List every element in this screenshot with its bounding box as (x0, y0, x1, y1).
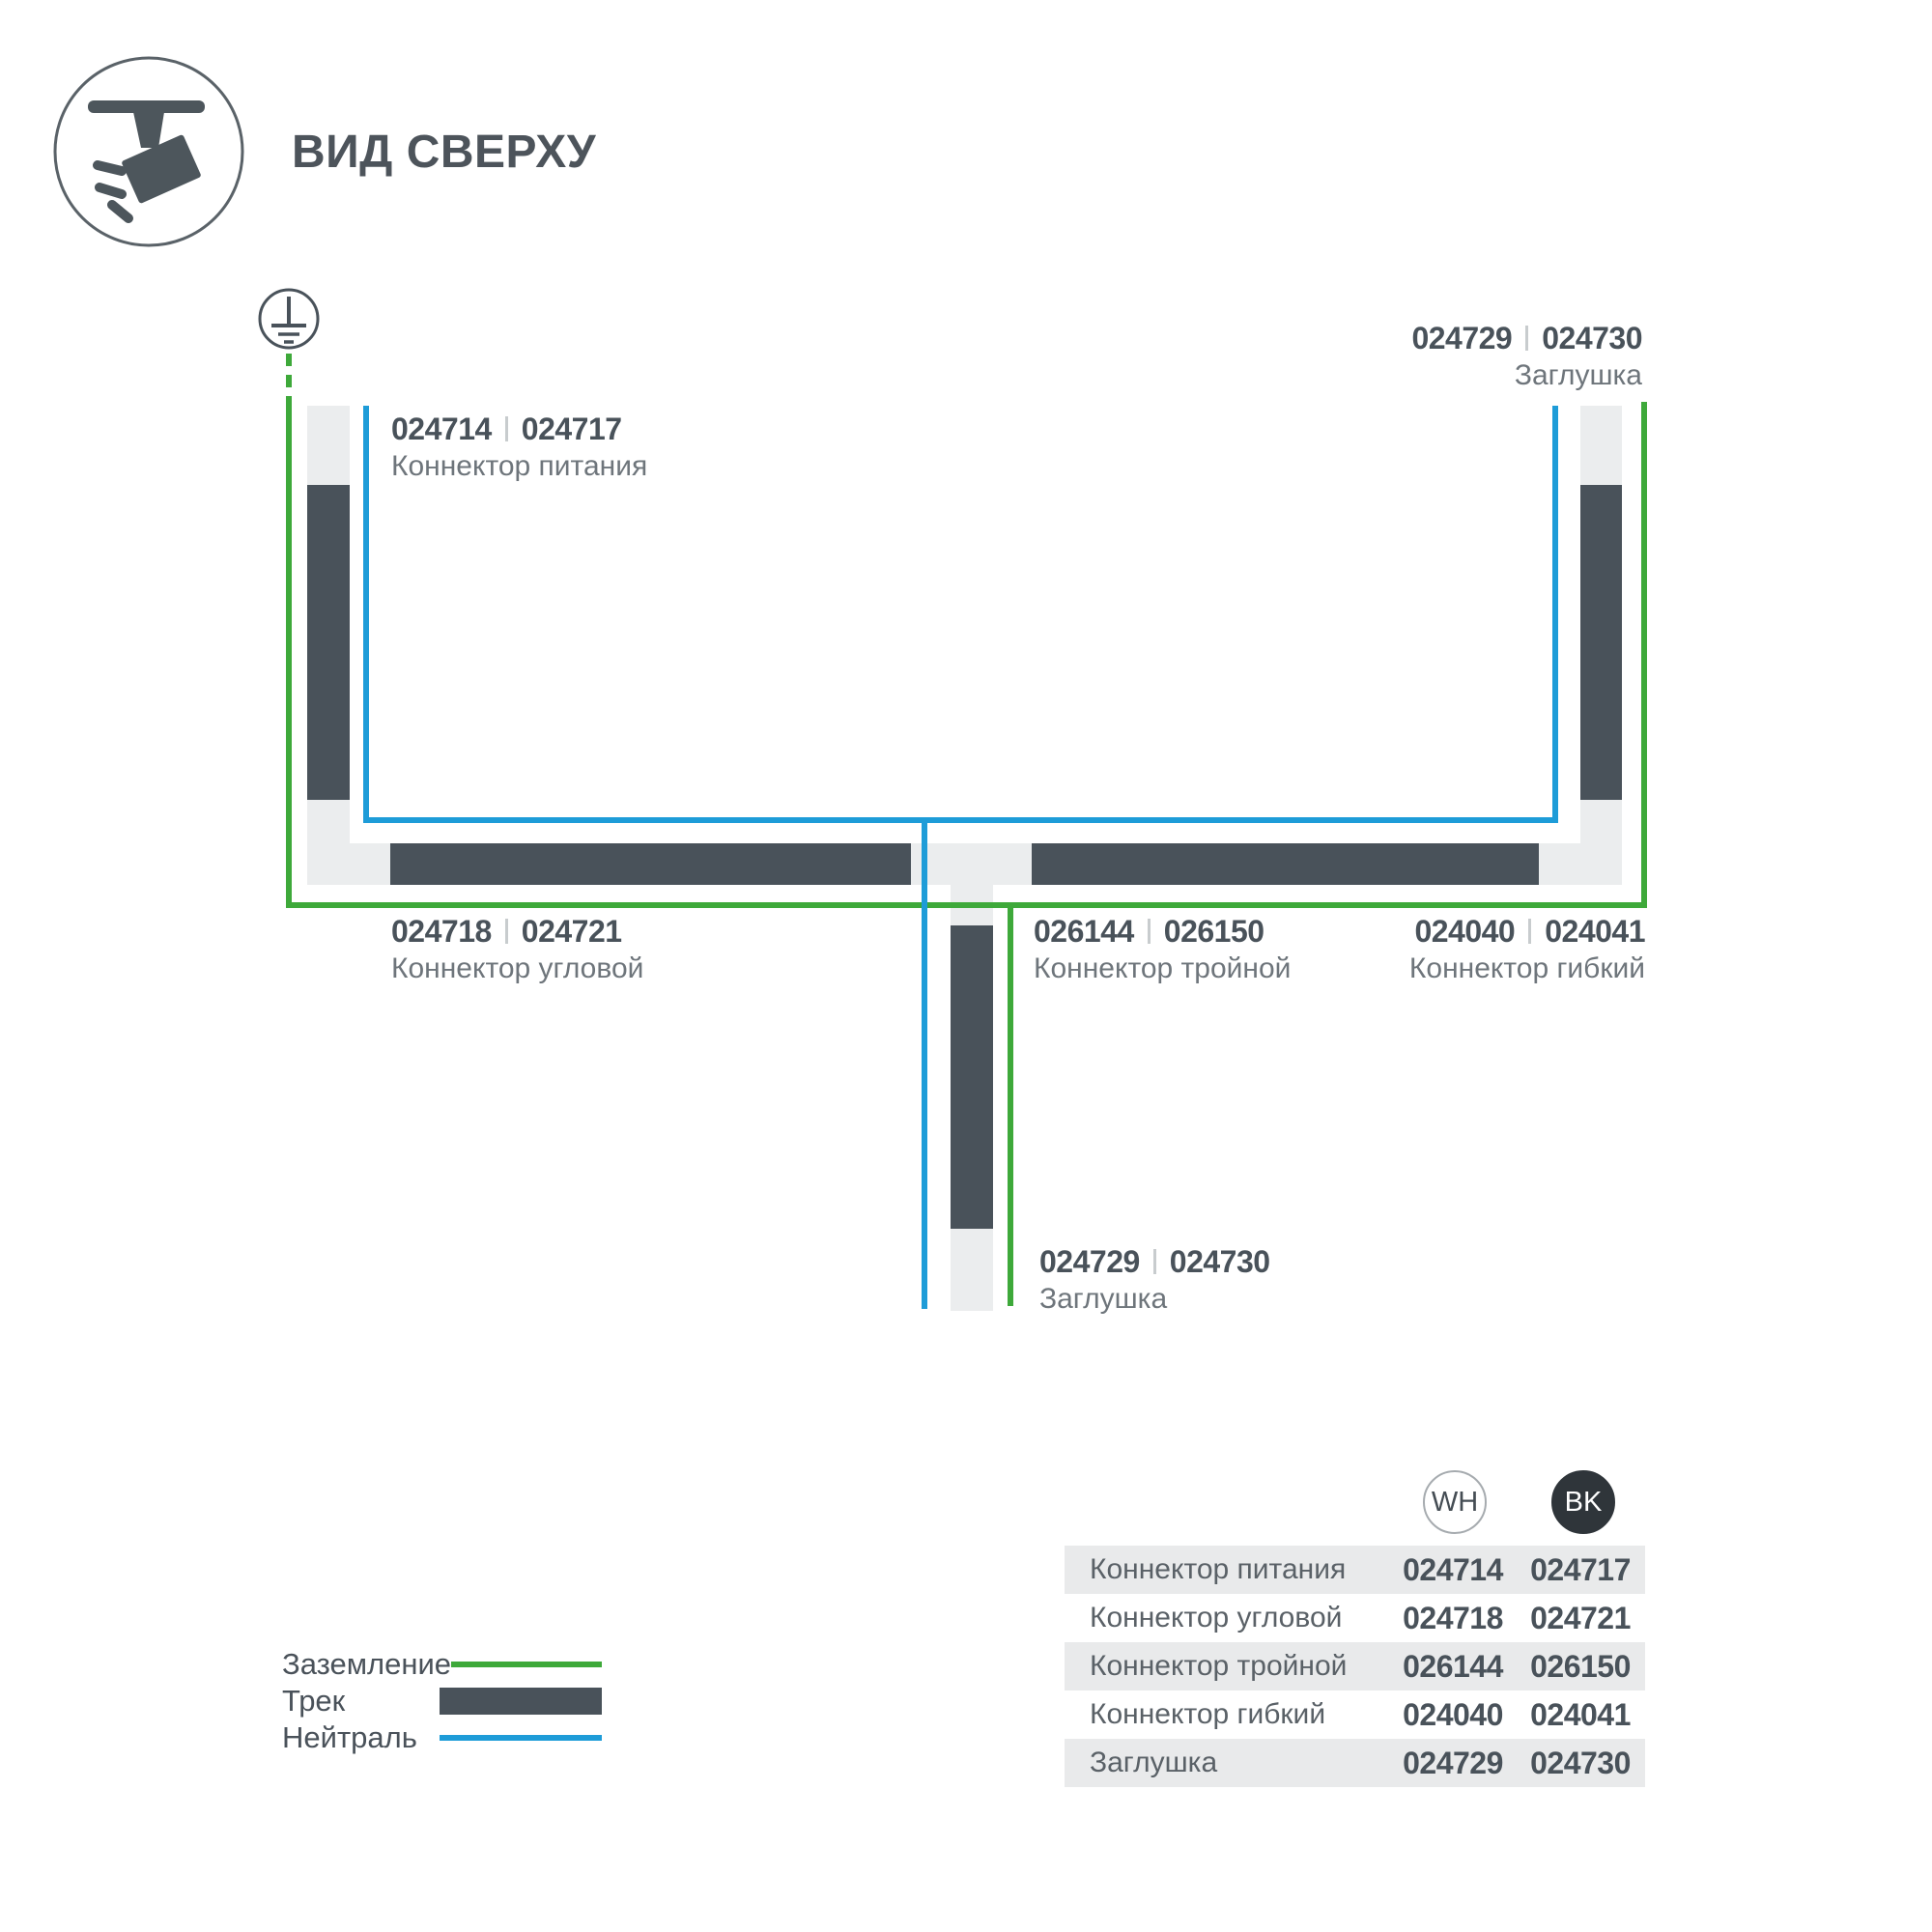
legend: Заземление Трек Нейтраль (282, 1646, 602, 1756)
separator (1525, 326, 1528, 351)
label-corner-connector: 024718024721 Коннектор угловой (391, 912, 643, 987)
code-wh: 024729 (1039, 1244, 1140, 1279)
neutral-line-swatch (440, 1735, 602, 1741)
part-name: Коннектор угловой (391, 951, 643, 987)
row-code-bk: 024721 (1517, 1601, 1644, 1636)
endcap-top-piece (1580, 406, 1622, 485)
code-bk: 024730 (1542, 321, 1642, 355)
label-triple-connector: 026144026150 Коннектор тройной (1034, 912, 1291, 987)
code-wh: 026144 (1034, 914, 1134, 949)
code-wh: 024729 (1411, 321, 1512, 355)
legend-label: Нейтраль (282, 1720, 417, 1755)
label-flex-connector: 024040024041 Коннектор гибкий (1409, 912, 1645, 987)
parts-table: WH BK Коннектор питания 024714 024717 Ко… (1065, 1546, 1645, 1787)
table-row: Коннектор угловой 024718 024721 (1065, 1594, 1645, 1642)
separator (505, 416, 508, 441)
part-name: Коннектор питания (391, 448, 647, 485)
row-code-bk: 026150 (1517, 1649, 1644, 1685)
track-segment-left (307, 485, 350, 800)
code-bk: 024730 (1170, 1244, 1270, 1279)
table-row: Коннектор гибкий 024040 024041 (1065, 1690, 1645, 1739)
row-code-wh: 024040 (1389, 1697, 1517, 1733)
label-endcap-bottom: 024729024730 Заглушка (1039, 1242, 1270, 1318)
track-bar-swatch (440, 1688, 602, 1715)
endcap-bottom-piece (951, 1229, 993, 1311)
column-header-bk: BK (1551, 1470, 1615, 1534)
row-label: Коннектор тройной (1065, 1650, 1389, 1683)
legend-item-neutral: Нейтраль (282, 1719, 602, 1756)
separator (505, 919, 508, 944)
row-code-wh: 026144 (1389, 1649, 1517, 1685)
power-connector-piece (307, 406, 350, 485)
code-wh: 024040 (1414, 914, 1515, 949)
column-header-wh: WH (1423, 1470, 1487, 1534)
legend-label: Заземление (282, 1647, 451, 1682)
separator (1153, 1249, 1156, 1274)
legend-item-track: Трек (282, 1683, 602, 1719)
part-name: Коннектор гибкий (1409, 951, 1645, 987)
triple-connector-piece (911, 843, 1032, 925)
part-name: Заглушка (1039, 1281, 1270, 1318)
flex-connector-piece (1539, 800, 1622, 885)
part-name: Заглушка (1411, 357, 1642, 394)
code-bk: 026150 (1164, 914, 1264, 949)
code-wh: 024718 (391, 914, 492, 949)
row-code-bk: 024730 (1517, 1746, 1644, 1781)
separator (1148, 919, 1151, 944)
legend-label: Трек (282, 1684, 345, 1719)
code-wh: 024714 (391, 412, 492, 446)
separator (1528, 919, 1531, 944)
row-code-wh: 024718 (1389, 1601, 1517, 1636)
track-segment-right (1580, 485, 1622, 800)
label-endcap-top: 024729024730 Заглушка (1411, 319, 1642, 394)
code-bk: 024041 (1545, 914, 1645, 949)
part-name: Коннектор тройной (1034, 951, 1291, 987)
row-label: Коннектор питания (1065, 1553, 1389, 1586)
row-code-wh: 024729 (1389, 1746, 1517, 1781)
row-label: Заглушка (1065, 1747, 1389, 1779)
table-row: Заглушка 024729 024730 (1065, 1739, 1645, 1787)
ground-symbol-icon (260, 290, 318, 348)
row-code-wh: 024714 (1389, 1552, 1517, 1588)
row-label: Коннектор угловой (1065, 1602, 1389, 1634)
track-segment-bottom-left (390, 843, 911, 885)
row-code-bk: 024041 (1517, 1697, 1644, 1733)
row-code-bk: 024717 (1517, 1552, 1644, 1588)
table-row: Коннектор тройной 026144 026150 (1065, 1642, 1645, 1690)
track-segment-middle (951, 925, 993, 1229)
label-power-connector: 024714024717 Коннектор питания (391, 410, 647, 485)
table-row: Коннектор питания 024714 024717 (1065, 1546, 1645, 1594)
ground-line-swatch (451, 1662, 602, 1667)
track-segment-bottom-right (1032, 843, 1539, 885)
page: ВИД СВЕРХУ (0, 0, 1932, 1932)
corner-connector-piece (307, 800, 390, 885)
code-bk: 024721 (522, 914, 622, 949)
code-bk: 024717 (522, 412, 622, 446)
row-label: Коннектор гибкий (1065, 1698, 1389, 1731)
legend-item-ground: Заземление (282, 1646, 602, 1683)
